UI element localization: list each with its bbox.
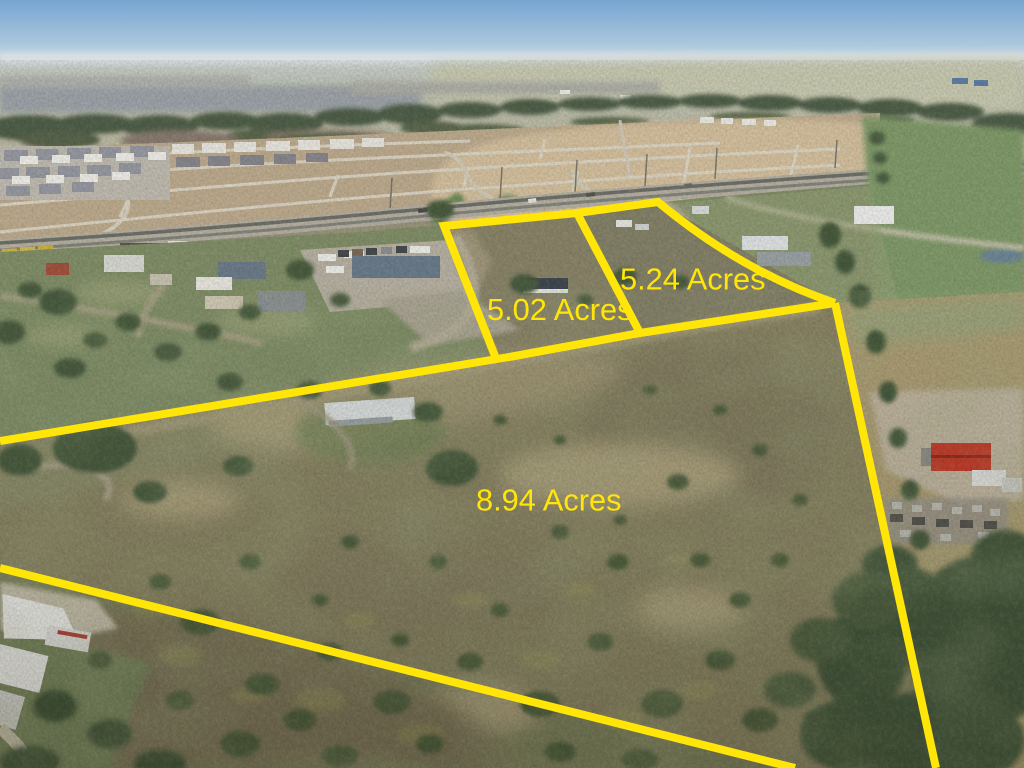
svg-text:8.94 Acres: 8.94 Acres <box>476 483 622 518</box>
svg-text:5.02 Acres: 5.02 Acres <box>487 292 633 327</box>
svg-text:5.24 Acres: 5.24 Acres <box>620 262 766 297</box>
